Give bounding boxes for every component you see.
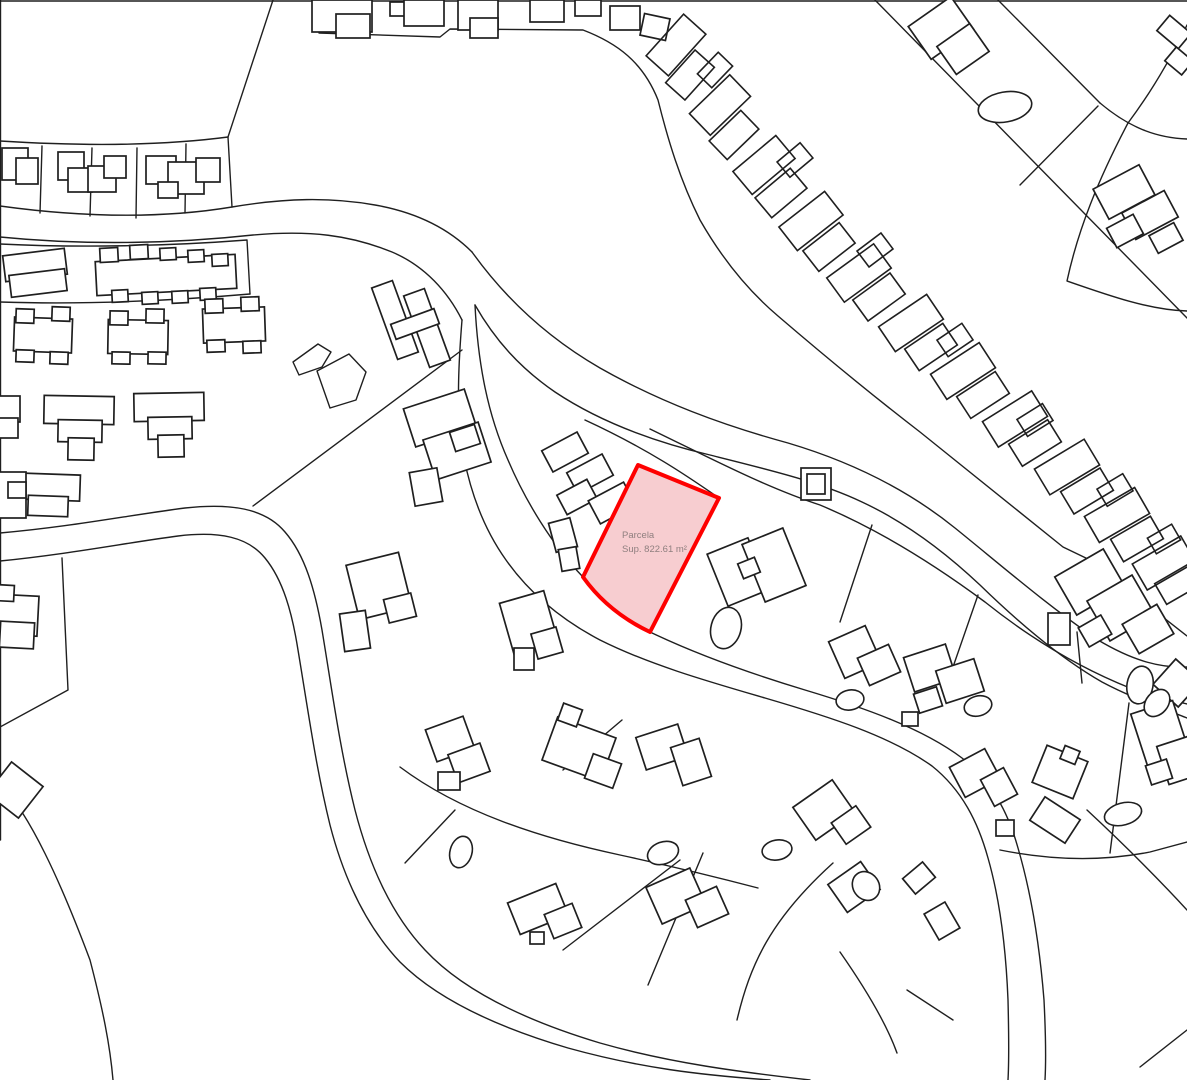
boundary-line [840, 525, 872, 622]
building-footprint [1030, 797, 1080, 843]
building-footprint [671, 738, 712, 785]
building-footprint [803, 223, 855, 272]
building-footprint [68, 438, 94, 460]
building-footprint [1084, 488, 1149, 543]
pool [644, 837, 682, 869]
building-footprint [8, 482, 26, 498]
building-footprint [243, 341, 261, 354]
boundary-line [40, 146, 42, 213]
building-footprint [1009, 420, 1062, 466]
building-footprint [1034, 439, 1099, 495]
building-footprint [931, 343, 996, 400]
boundary-line [0, 783, 113, 1080]
boundary-line [1110, 703, 1129, 853]
building-footprint [957, 372, 1010, 419]
building-footprint [807, 474, 825, 494]
building-footprint [160, 248, 177, 261]
pool [976, 88, 1034, 127]
map-svg: Parcela Sup. 822.61 m² [0, 0, 1187, 1080]
pool [446, 834, 476, 871]
building-footprint [50, 352, 68, 365]
boundary-line [998, 0, 1100, 103]
building-footprint [514, 648, 534, 670]
building-footprint [404, 0, 444, 26]
building-footprint [100, 248, 119, 263]
building-footprint [196, 158, 220, 182]
building-footprint [205, 299, 223, 314]
building-footprint [709, 110, 759, 159]
building-footprint [16, 350, 34, 363]
building-footprint [905, 323, 958, 370]
building-footprint [0, 584, 14, 601]
boundary-line [1087, 810, 1187, 910]
building-footprint [28, 495, 69, 516]
boundary-line [0, 200, 472, 252]
building-footprint [52, 307, 70, 322]
building-footprint [148, 352, 166, 364]
building-footprint [158, 435, 184, 457]
building-footprint [1048, 613, 1070, 645]
building-footprint [110, 311, 128, 325]
boundary-line [907, 990, 953, 1020]
building-footprint [666, 50, 715, 100]
building-footprint [16, 158, 38, 184]
building-footprint [336, 14, 370, 38]
building-footprint [16, 309, 34, 324]
building-footprint [558, 547, 580, 572]
building-footprint [1165, 47, 1187, 75]
building-footprint [779, 191, 843, 250]
building-footprint [241, 297, 259, 312]
building-footprint [409, 468, 442, 506]
building-footprint [0, 621, 35, 649]
boundary-line [228, 0, 273, 137]
building-footprint [610, 6, 640, 30]
boundary-line [1100, 103, 1187, 139]
building-footprint [1061, 468, 1114, 514]
building-footprint [924, 902, 960, 940]
boundary-line [1020, 106, 1098, 185]
building-footprint [112, 352, 130, 364]
pool [1102, 798, 1144, 829]
building-footprint [937, 323, 973, 356]
building-footprint [1097, 474, 1133, 507]
building-footprint [1132, 536, 1187, 590]
building-footprint [996, 820, 1014, 836]
building-footprint [0, 762, 43, 818]
building-footprint [530, 932, 544, 944]
building-footprint [158, 182, 178, 198]
building-footprint [902, 712, 918, 726]
building-footprint [777, 143, 813, 178]
building-footprint [112, 290, 129, 303]
cadastral-map-viewport: Parcela Sup. 822.61 m² [0, 0, 1187, 1080]
building-footprint [879, 294, 944, 351]
building-footprint [146, 309, 164, 323]
building-footprint [982, 391, 1047, 447]
boundary-line [1140, 1030, 1187, 1067]
pool [760, 838, 793, 863]
building-footprint [130, 245, 149, 260]
building-footprint [438, 772, 460, 790]
building-footprint [142, 292, 159, 305]
building-footprint [903, 862, 936, 894]
building-footprint [530, 0, 564, 22]
building-footprint [1157, 15, 1187, 48]
building-footprint [339, 610, 370, 651]
boundary-line [840, 952, 897, 1053]
boundary-line [1000, 842, 1187, 859]
building-footprint [172, 291, 189, 304]
boundary-line [136, 148, 137, 218]
boundary-line [405, 810, 455, 863]
boundary-line [475, 305, 1187, 718]
building-footprint [188, 250, 205, 263]
building-footprint [640, 14, 670, 41]
boundary-line [1077, 632, 1082, 683]
building-footprint [104, 156, 126, 178]
parcel-label-area: Sup. 822.61 m² [622, 544, 687, 555]
boundary-line [875, 0, 1187, 318]
building-footprint [575, 0, 601, 16]
building-footprint [207, 340, 225, 353]
building-footprint [212, 254, 229, 267]
parcel-label-name: Parcela [622, 530, 655, 541]
building-footprint [1111, 516, 1164, 562]
boundary-line [293, 344, 331, 375]
building-footprint [0, 418, 18, 438]
building-footprint [470, 18, 498, 38]
pool [706, 604, 746, 652]
